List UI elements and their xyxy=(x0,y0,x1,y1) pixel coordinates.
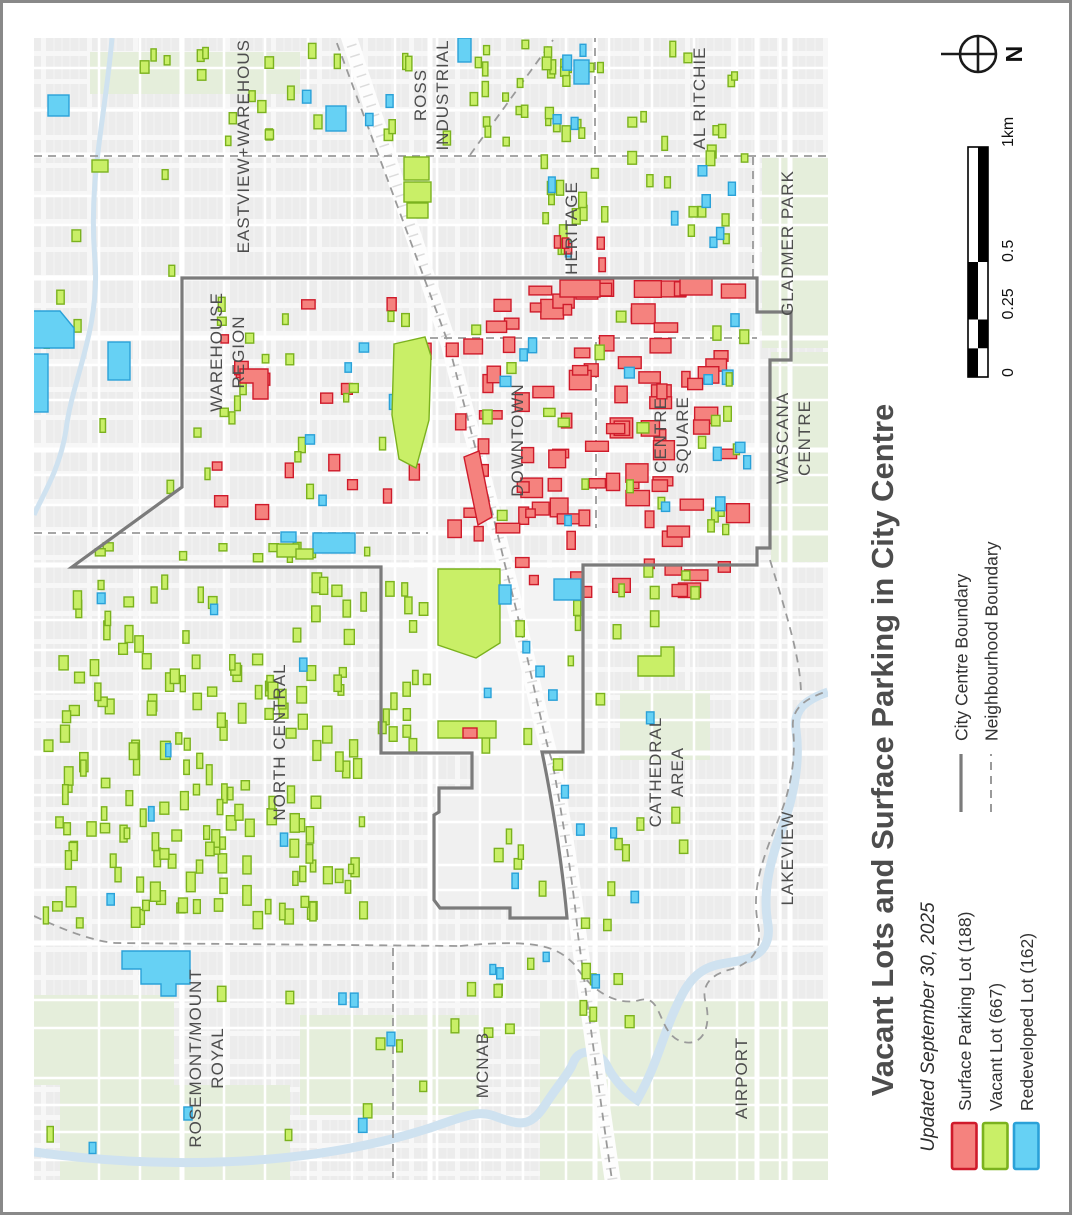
vacant-lot xyxy=(402,314,410,327)
vacant-lot xyxy=(544,408,555,416)
vacant-lot xyxy=(528,958,534,969)
neighbourhood-label: LAKEVIEW xyxy=(778,811,797,906)
vacant-lot xyxy=(125,626,133,643)
neighbourhood-label: AIRPORT xyxy=(732,1037,751,1119)
redeveloped-lot xyxy=(716,497,725,511)
vacant-lot xyxy=(298,714,307,729)
vacant-lot xyxy=(160,802,169,814)
redeveloped-lot xyxy=(704,375,712,385)
vacant-lot xyxy=(359,817,364,827)
vacant-lot xyxy=(410,621,417,633)
vacant-lot xyxy=(204,826,210,840)
vacant-lot xyxy=(265,57,274,69)
scale-tick-label: 1km xyxy=(1000,117,1017,147)
vacant-lot xyxy=(151,882,161,901)
vacant-lot xyxy=(483,117,489,127)
neighbourhood-label: GLADMER PARK xyxy=(778,170,797,316)
redeveloped-lot xyxy=(580,44,586,56)
vacant-lot xyxy=(286,991,294,1003)
redeveloped-lot xyxy=(303,90,311,103)
map-scene: EASTVIEW+WAREHOUSEROSSINDUSTRIALHERITAGE… xyxy=(0,0,1072,1215)
vacant-lot xyxy=(563,76,570,87)
vacant-lot xyxy=(602,207,608,222)
surface-parking-lot xyxy=(215,496,228,507)
vacant-lot xyxy=(140,61,149,73)
redeveloped-lot xyxy=(536,666,544,677)
vacant-lot xyxy=(402,583,408,596)
vacant-lot xyxy=(151,49,156,61)
neighbourhood-label: DOWNTOWN xyxy=(508,383,527,496)
surface-parking-lot xyxy=(529,286,552,295)
vacant-lot xyxy=(363,1104,372,1118)
vacant-lot xyxy=(64,823,71,835)
vacant-lot xyxy=(650,586,659,598)
vacant-lot xyxy=(74,320,81,333)
surface-parking-lot xyxy=(563,305,571,316)
vacant-lot xyxy=(285,1129,292,1140)
vacant-lot xyxy=(403,682,410,696)
vacant-lot xyxy=(323,726,332,743)
vacant-lot xyxy=(235,804,243,820)
vacant-lot xyxy=(541,155,547,169)
vacant-lot xyxy=(543,213,549,224)
vacant-lot xyxy=(361,593,367,612)
neighbourhood-label: AL RITCHIE xyxy=(690,47,709,150)
vacant-lot xyxy=(344,394,349,402)
vacant-lot xyxy=(255,686,262,699)
surface-parking-lot xyxy=(672,585,687,597)
redeveloped-lot xyxy=(520,349,527,361)
vacant-lot xyxy=(397,1040,403,1052)
vacant-lot xyxy=(198,70,206,81)
vacant-lot xyxy=(280,903,286,920)
vacant-lot xyxy=(335,869,343,882)
vacant-lot xyxy=(332,585,342,596)
surface-parking-lot xyxy=(667,526,689,537)
vacant-lot xyxy=(334,54,340,68)
redeveloped-lot xyxy=(149,807,155,821)
vacant-lot xyxy=(691,587,699,599)
vacant-lot xyxy=(334,675,341,691)
vacant-lot xyxy=(386,582,394,597)
vacant-lot xyxy=(579,128,585,139)
city-centre-boundary-label: City Centre Boundary xyxy=(952,573,972,741)
vacant-lot xyxy=(61,725,70,742)
vacant-lot xyxy=(545,107,553,118)
surface-parking-lot xyxy=(607,473,620,490)
vacant-lot xyxy=(608,882,615,896)
vacant-lot xyxy=(494,985,502,998)
vacant-lot xyxy=(320,577,328,594)
vacant-lot xyxy=(81,760,87,776)
vacant-lot xyxy=(72,230,81,242)
north-label: N xyxy=(1001,46,1027,63)
vacant-lot xyxy=(245,819,254,836)
vacant-lot xyxy=(235,396,241,411)
vacant-lot xyxy=(732,72,738,80)
redeveloped-lot xyxy=(281,532,296,542)
surface-parking-lot xyxy=(727,504,750,523)
vacant-lot xyxy=(137,877,144,892)
vacant-lot xyxy=(205,468,210,480)
vacant-lot xyxy=(194,428,201,437)
vacant-lot xyxy=(391,693,397,710)
redeveloped-lot xyxy=(359,1118,368,1132)
vacant-lot xyxy=(699,436,706,448)
vacant-lot xyxy=(180,676,185,692)
vacant-lot xyxy=(119,643,128,654)
vacant-lot xyxy=(253,654,263,665)
surface-parking-lot xyxy=(573,366,588,375)
vacant-lot xyxy=(115,867,121,881)
scale-tick-label: 0.5 xyxy=(1000,240,1017,262)
vacant-lot xyxy=(218,854,226,873)
scale-tick-label: 0.25 xyxy=(1000,288,1017,319)
vacant-lot xyxy=(651,611,659,627)
park xyxy=(620,690,710,760)
vacant-lot xyxy=(307,484,314,498)
redeveloped-lot xyxy=(48,95,69,116)
vacant-lot xyxy=(524,729,532,745)
vacant-lot xyxy=(724,407,732,422)
redeveloped-lot xyxy=(33,354,48,412)
scale-bar xyxy=(968,147,988,377)
redeveloped-lot xyxy=(89,1142,96,1153)
redeveloped-lot-swatch xyxy=(1014,1123,1039,1169)
vacant-lot xyxy=(360,902,368,919)
vacant-lot xyxy=(295,452,301,462)
vacant-lot xyxy=(468,983,476,996)
surface-parking-lot xyxy=(446,343,458,356)
redeveloped-lot xyxy=(562,785,569,798)
redeveloped-lot xyxy=(490,965,496,975)
vacant-lot xyxy=(614,974,622,985)
vacant-lot xyxy=(324,867,333,884)
vacant-lot xyxy=(90,660,98,676)
vacant-lot xyxy=(301,896,309,907)
surface-parking-lot xyxy=(665,566,681,575)
vacant-lot xyxy=(283,314,289,325)
redeveloped-lot xyxy=(563,55,572,70)
surface-parking-lot-swatch xyxy=(952,1123,977,1169)
vacant-lot xyxy=(482,82,488,97)
vacant-lot xyxy=(217,800,223,815)
vacant-lot xyxy=(129,743,138,760)
surface-parking-lot xyxy=(549,450,566,468)
surface-parking-lot xyxy=(589,479,605,488)
vacant-lot xyxy=(170,669,179,683)
vacant-lot xyxy=(591,169,598,179)
redeveloped-lot xyxy=(625,367,635,378)
surface-parking-lot xyxy=(463,728,477,738)
vacant-lot xyxy=(344,630,354,645)
redeveloped-lot xyxy=(326,106,346,131)
vacant-lot xyxy=(722,214,729,226)
vacant-lot xyxy=(404,157,429,180)
surface-parking-lot xyxy=(688,378,703,389)
redeveloped-lot xyxy=(698,166,707,176)
vacant-lot xyxy=(253,554,262,562)
vacant-lot xyxy=(206,842,214,856)
surface-parking-lot xyxy=(487,321,507,332)
surface-parking-lot xyxy=(607,424,625,434)
vacant-lot xyxy=(562,126,570,142)
vacant-lot xyxy=(625,1016,634,1028)
vacant-lot xyxy=(470,93,477,106)
vacant-lot xyxy=(95,683,101,700)
vacant-lot xyxy=(186,872,195,892)
vacant-lot xyxy=(619,584,624,597)
redeveloped-lot xyxy=(484,688,491,697)
neighbourhood-label: EASTVIEW+WAREHOUSE xyxy=(234,27,253,254)
map-area: EASTVIEW+WAREHOUSEROSSINDUSTRIALHERITAGE… xyxy=(33,25,828,1183)
vacant-lot xyxy=(253,912,262,929)
vacant-lot xyxy=(349,864,354,873)
vacant-lot xyxy=(197,753,203,768)
surface-parking-lot xyxy=(530,576,539,585)
vacant-lot xyxy=(167,480,174,493)
vacant-lot xyxy=(420,1081,427,1091)
vacant-lot xyxy=(135,636,144,652)
neighbourhood-boundary-label: Neighbourhood Boundary xyxy=(982,541,1002,741)
vacant-lot xyxy=(522,40,529,49)
redeveloped-lot xyxy=(166,744,171,757)
vacant-lot xyxy=(87,822,96,836)
vacant-lot xyxy=(193,784,199,795)
vacant-lot xyxy=(623,845,630,861)
vacant-lot xyxy=(299,437,306,452)
vacant-lot xyxy=(544,47,551,58)
redeveloped-lot xyxy=(497,968,504,979)
neighbourhood-label: MCNAB xyxy=(473,1032,492,1098)
surface-parking-lot xyxy=(302,300,315,309)
vacant-lot xyxy=(238,703,246,723)
redeveloped-lot xyxy=(499,585,511,604)
vacant-lot xyxy=(208,687,217,696)
surface-parking-lot xyxy=(384,489,392,503)
vacant-lot xyxy=(307,666,316,681)
vacant-lot xyxy=(475,57,481,67)
vacant-lot xyxy=(628,152,637,165)
vacant-lot xyxy=(404,182,431,202)
vacant-lot xyxy=(126,791,133,806)
vacant-lot xyxy=(517,79,523,88)
vacant-lot xyxy=(708,520,715,532)
vacant-lot xyxy=(389,120,395,134)
surface-parking-lot xyxy=(586,441,609,451)
vacant-lot xyxy=(672,807,680,823)
redeveloped-lot xyxy=(631,891,638,902)
vacant-lot xyxy=(558,418,569,427)
vacant-lot xyxy=(682,571,690,580)
vacant-lot xyxy=(285,909,294,924)
redeveloped-lot xyxy=(458,38,471,62)
vacant-lot xyxy=(345,881,351,894)
surface-parking-lot xyxy=(387,298,396,311)
vacant-lot xyxy=(310,902,316,921)
redeveloped-lot xyxy=(211,604,218,614)
redeveloped-lot xyxy=(319,495,326,505)
vacant-lot xyxy=(503,93,509,101)
vacant-lot xyxy=(680,840,688,853)
vacant-lot xyxy=(297,687,307,703)
vacant-lot xyxy=(43,907,48,924)
vacant-lot xyxy=(172,830,182,841)
vacant-lot xyxy=(349,384,358,393)
vacant-lot xyxy=(220,837,226,849)
surface-parking-lot xyxy=(657,384,667,399)
surface-parking-lot xyxy=(721,284,745,298)
surface-parking-lot xyxy=(548,479,561,492)
redeveloped-lot xyxy=(300,658,307,671)
vacant-lot xyxy=(218,986,226,1001)
vacant-lot xyxy=(740,330,749,344)
vacant-lot xyxy=(688,225,694,236)
vacant-lot xyxy=(403,709,410,721)
surface-parking-lot xyxy=(256,505,269,520)
redeveloped-lot xyxy=(386,95,393,108)
vacant-lot xyxy=(518,845,523,859)
vacant-lot xyxy=(336,752,344,771)
vacant-lot xyxy=(507,363,516,374)
redeveloped-lot xyxy=(280,833,287,846)
vacant-lot xyxy=(306,845,313,864)
vacant-lot xyxy=(539,881,546,896)
vacant-lot xyxy=(590,1007,597,1021)
surface-parking-lot xyxy=(474,527,483,541)
vacant-lot xyxy=(409,739,417,752)
surface-parking-lot xyxy=(496,523,520,533)
vacant-lot xyxy=(485,126,491,137)
vacant-lot xyxy=(110,854,116,867)
vacant-lot xyxy=(164,56,170,65)
redeveloped-lot xyxy=(543,952,549,961)
vacant-lot xyxy=(184,760,190,774)
redeveloped-lot-label: Redeveloped Lot (162) xyxy=(1017,933,1037,1111)
vacant-lot xyxy=(217,713,225,727)
redeveloped-lot xyxy=(306,435,315,444)
vacant-lot xyxy=(388,311,394,321)
vacant-lot xyxy=(162,575,168,589)
redeveloped-lot xyxy=(710,237,717,247)
vacant-lot xyxy=(206,765,212,785)
vacant-lot xyxy=(406,56,412,71)
vacant-lot xyxy=(647,175,653,187)
vacant-lot xyxy=(306,827,313,843)
surface-parking-lot xyxy=(632,304,656,324)
vacant-lot xyxy=(554,759,563,770)
vacant-lot xyxy=(56,817,63,828)
vacant-lot xyxy=(723,524,729,534)
vacant-lot xyxy=(516,621,524,637)
vacant-lot xyxy=(405,597,412,614)
vacant-lot xyxy=(293,872,298,886)
vacant-lot xyxy=(503,137,509,146)
redeveloped-lot xyxy=(574,60,589,84)
vacant-lot xyxy=(183,631,189,643)
vacant-lot xyxy=(179,898,188,913)
vacant-lot xyxy=(214,899,222,911)
vacant-lot xyxy=(582,479,588,489)
vacant-lot xyxy=(380,437,386,450)
neighbourhood-label: NORTH CENTRAL xyxy=(270,663,289,820)
vacant-lot xyxy=(290,839,299,857)
vacant-lot xyxy=(574,601,581,616)
surface-parking-lot xyxy=(680,499,703,510)
vacant-lot xyxy=(92,160,108,172)
vacant-lot xyxy=(180,552,187,560)
park xyxy=(34,995,174,1085)
vacant-lot xyxy=(288,86,295,100)
vacant-lot xyxy=(241,781,249,790)
vacant-lot xyxy=(102,807,107,820)
vacant-lot xyxy=(494,848,503,861)
vacant-lot xyxy=(598,63,604,73)
vacant-lot xyxy=(689,207,697,217)
vacant-lot xyxy=(350,740,358,757)
vacant-lot xyxy=(311,796,321,808)
surface-parking-lot xyxy=(560,280,600,297)
vacant-lot xyxy=(514,859,521,870)
surface-parking-lot xyxy=(329,455,340,471)
redeveloped-lot xyxy=(702,195,710,208)
vacant-lot xyxy=(580,1001,587,1016)
vacant-lot xyxy=(419,603,428,616)
vacant-lot xyxy=(220,878,227,893)
surface-parking-lot xyxy=(579,510,590,526)
map-sheet: EASTVIEW+WAREHOUSEROSSINDUSTRIALHERITAGE… xyxy=(0,0,1072,1215)
surface-parking-lot xyxy=(680,278,712,295)
vacant-lot xyxy=(575,616,580,631)
vacant-lot xyxy=(615,839,622,850)
scale-tick-label: 0 xyxy=(1000,368,1017,377)
redeveloped-lot xyxy=(350,993,358,1007)
vacant-lot xyxy=(152,833,159,851)
redeveloped-lot xyxy=(512,873,518,888)
surface-parking-lot xyxy=(554,236,560,248)
vacant-lot xyxy=(613,625,621,639)
vacant-lot xyxy=(229,412,235,424)
redeveloped-lot xyxy=(359,343,368,352)
vacant-lot xyxy=(194,900,201,914)
vacant-lot xyxy=(64,767,73,785)
vacant-lot xyxy=(290,814,299,833)
vacant-lot xyxy=(265,130,273,139)
redeveloped-lot xyxy=(553,115,561,124)
vacant-lot xyxy=(63,785,69,805)
vacant-lot xyxy=(312,606,320,622)
vacant-lot xyxy=(142,654,151,669)
vacant-lot xyxy=(228,787,233,800)
surface-parking-lot xyxy=(494,299,511,311)
redeveloped-lot xyxy=(662,502,670,511)
vacant-lot xyxy=(595,345,604,360)
vacant-lot xyxy=(497,510,507,520)
vacant-lot xyxy=(140,809,146,827)
vacant-lot xyxy=(582,963,590,978)
vacant-lot xyxy=(243,856,251,874)
redeveloped-lot xyxy=(529,338,537,353)
vacant-lot xyxy=(124,597,134,607)
vacant-lot xyxy=(162,170,168,180)
vacant-lot xyxy=(230,655,235,670)
vacant-lot xyxy=(506,829,511,844)
vacant-lot xyxy=(719,124,726,137)
vacant-lot xyxy=(604,919,611,930)
vacant-lot xyxy=(549,195,555,205)
redeveloped-lot xyxy=(97,593,105,604)
vacant-lot xyxy=(407,203,428,218)
